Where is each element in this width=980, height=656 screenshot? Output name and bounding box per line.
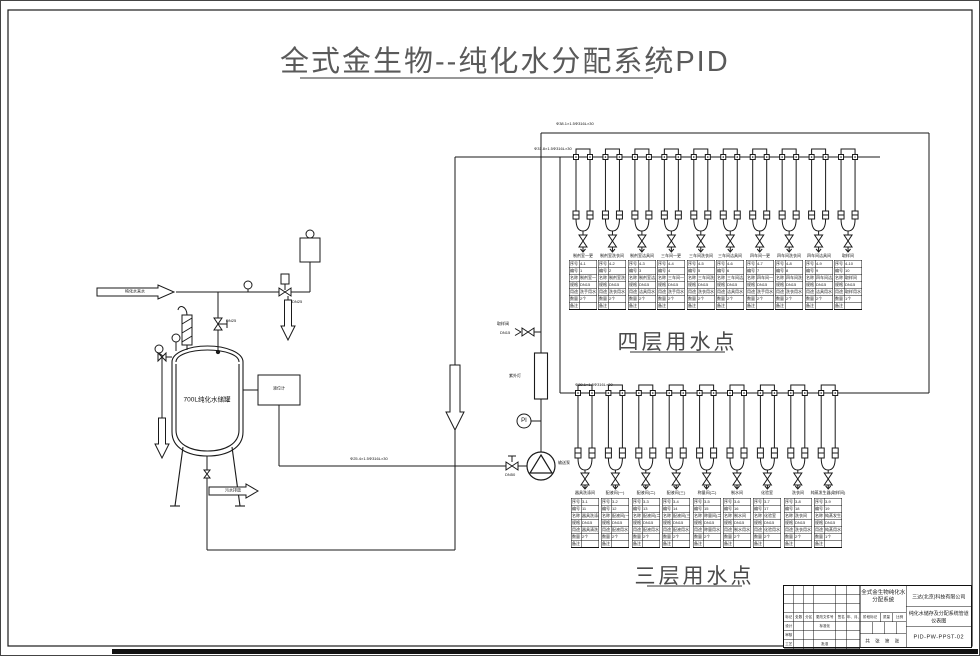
table-field-value: 配液间(一): [612, 513, 629, 520]
titleblock-grid: 标记处数分区更改文件号签名年、月、日设计标准化审核工艺批准: [784, 586, 860, 649]
table-field-value: 称量间(二): [703, 513, 720, 520]
table-field-label: 序号: [572, 499, 582, 506]
table-field-label: 编号: [746, 268, 756, 275]
table-field-label: 序号: [663, 499, 673, 506]
use-point-spec-table: 序号4-6编号6名称三车间洁具间规格DN15用途洁具用水数量2个备注: [716, 260, 744, 310]
table-field-label: 编号: [599, 268, 609, 275]
table-field-value: DN15: [815, 282, 832, 289]
table-field-label: 规格: [784, 520, 794, 527]
titleblock-cell: [836, 595, 847, 604]
table-field-label: 编号: [717, 268, 727, 275]
table-field-value: 4-9: [815, 261, 832, 268]
table-field-label: 用途: [754, 527, 764, 534]
table-field-label: 名称: [658, 275, 668, 282]
stage-label: 阶段标记: [861, 613, 881, 622]
table-field-label: 数量: [776, 296, 786, 303]
table-field-value: DN15: [582, 520, 599, 527]
table-field-value: 3: [638, 268, 655, 275]
table-field-value: 3-6: [734, 499, 751, 506]
table-field-value: 4-2: [609, 261, 626, 268]
table-field-value: 制剂室洁具间: [638, 275, 655, 282]
table-field-value: 10: [845, 268, 862, 275]
use-point-spec-table: 序号4-10编号10名称取样间规格DN15用途取样用水数量1个备注: [834, 260, 862, 310]
table-field-label: 规格: [805, 282, 815, 289]
table-field-label: 序号: [835, 261, 845, 268]
table-field-value: 2个: [612, 534, 629, 541]
table-field-label: 名称: [815, 513, 825, 520]
sample-valve-size-label: DN15: [500, 331, 510, 335]
titleblock-cell: [804, 622, 814, 631]
table-field-value: [673, 541, 690, 548]
table-field-value: 取样间: [845, 275, 862, 282]
stage-boxes: [861, 622, 907, 634]
table-field-value: 2个: [609, 296, 626, 303]
table-field-value: 配液用水: [612, 527, 629, 534]
table-field-label: 用途: [835, 289, 845, 296]
table-field-label: 名称: [602, 513, 612, 520]
table-field-label: 规格: [815, 520, 825, 527]
table-field-label: 规格: [658, 282, 668, 289]
table-field-label: 编号: [805, 268, 815, 275]
table-field-label: 数量: [754, 534, 764, 541]
titleblock-cell: [794, 622, 804, 631]
table-field-label: 序号: [599, 261, 609, 268]
use-point-spec-table: 序号4-3编号3名称制剂室洁具间规格DN15用途洁具用水数量2个备注: [628, 260, 656, 310]
supply-header-spec-label: Φ38.1×1.5Φ316L×30: [556, 122, 594, 126]
sheet-count: 共 张 第 张: [861, 634, 907, 649]
table-field-label: 规格: [746, 282, 756, 289]
table-field-value: 3-7: [764, 499, 781, 506]
table-field-value: [845, 303, 862, 310]
pump-label: 输送泵: [558, 461, 570, 465]
table-field-value: 4: [668, 268, 685, 275]
table-field-value: 配液间(三): [673, 513, 690, 520]
table-field-label: 编号: [784, 506, 794, 513]
tank-label: 700L纯化水储罐: [177, 394, 237, 404]
inlet-arrow-label: 纯化水来水: [105, 289, 165, 294]
titleblock-cell: [847, 586, 860, 595]
table-field-label: 规格: [663, 520, 673, 527]
table-field-label: 名称: [724, 513, 734, 520]
table-field-label: 规格: [570, 282, 580, 289]
table-field-label: 规格: [572, 520, 582, 527]
table-field-label: 序号: [776, 261, 786, 268]
table-field-value: DN15: [825, 520, 842, 527]
table-field-value: DN15: [642, 520, 659, 527]
table-field-label: 序号: [815, 499, 825, 506]
table-field-value: 洗手用水: [668, 289, 685, 296]
titleblock-cell: [814, 604, 836, 613]
use-point-spec-table: 序号3-8编号18名称洗衣间规格DN15用途洗衣用水数量2个备注: [784, 498, 812, 548]
table-field-label: 用途: [776, 289, 786, 296]
table-field-label: 数量: [632, 534, 642, 541]
table-field-value: [580, 303, 597, 310]
table-field-value: 16: [734, 506, 751, 513]
titleblock-cell: 审核: [784, 631, 794, 640]
titleblock-cell: [804, 595, 814, 604]
table-field-value: 11: [582, 506, 599, 513]
table-field-value: 制水间: [734, 513, 751, 520]
table-field-label: 用途: [658, 289, 668, 296]
third-floor-section-title: 三层用水点: [617, 560, 772, 590]
table-field-label: 备注: [599, 303, 609, 310]
table-field-label: 备注: [663, 541, 673, 548]
use-point-spec-table: 序号3-5编号15名称称量间(二)规格DN15用途称量用水数量2个备注: [693, 498, 721, 548]
titleblock-cell: [814, 631, 836, 640]
table-field-value: 3-5: [703, 499, 720, 506]
titleblock-cell: 工艺: [784, 640, 794, 649]
suction-spec-label: Φ25.4×1.5Φ316L×30: [350, 457, 388, 461]
table-field-label: 序号: [693, 499, 703, 506]
table-field-label: 编号: [628, 268, 638, 275]
titleblock-cell: [794, 604, 804, 613]
table-field-label: 名称: [805, 275, 815, 282]
titleblock-cell: [836, 604, 847, 613]
table-field-label: 序号: [632, 499, 642, 506]
titleblock-cell: [836, 622, 847, 631]
table-field-label: 规格: [602, 520, 612, 527]
third-header-spec-label: Φ38.1×1.5Φ316L×30: [575, 383, 613, 387]
table-field-label: 规格: [835, 282, 845, 289]
titleblock-cell: 年、月、日: [847, 613, 860, 622]
table-field-label: 序号: [724, 499, 734, 506]
table-field-label: 用途: [693, 527, 703, 534]
use-point-label: 取样间: [818, 253, 878, 259]
table-field-label: 名称: [628, 275, 638, 282]
table-field-value: [703, 541, 720, 548]
table-field-label: 用途: [632, 527, 642, 534]
table-field-label: 编号: [754, 506, 764, 513]
table-field-value: [612, 541, 629, 548]
table-field-label: 用途: [628, 289, 638, 296]
table-field-value: 4-3: [638, 261, 655, 268]
table-field-label: 序号: [687, 261, 697, 268]
pi-gauge-label: PI: [514, 418, 534, 424]
table-field-value: [697, 303, 714, 310]
table-field-value: DN15: [727, 282, 744, 289]
table-field-label: 备注: [776, 303, 786, 310]
table-field-value: 2个: [794, 534, 811, 541]
table-field-value: DN15: [703, 520, 720, 527]
table-field-label: 备注: [632, 541, 642, 548]
table-field-value: DN15: [612, 520, 629, 527]
table-field-value: 1个: [825, 534, 842, 541]
titleblock-cell: [804, 631, 814, 640]
drawing-title: 全式金生物--纯化水分配系统PID: [280, 38, 680, 80]
regulator-size-label: DN25: [292, 300, 302, 304]
table-field-value: 9: [815, 268, 832, 275]
table-field-value: 三车间洁具间: [727, 275, 744, 282]
table-field-value: 4-5: [697, 261, 714, 268]
table-field-label: 编号: [570, 268, 580, 275]
table-field-value: 3-9: [825, 499, 842, 506]
table-field-value: 配液用水: [673, 527, 690, 534]
table-field-value: DN15: [580, 282, 597, 289]
stage-label-row: 阶段标记 质量 比例: [861, 613, 907, 622]
table-field-value: 2个: [673, 534, 690, 541]
table-field-value: [786, 303, 803, 310]
titleblock-cell: [836, 586, 847, 595]
table-field-value: DN15: [756, 282, 773, 289]
uv-lamp-label: 紫外灯: [509, 374, 521, 378]
table-field-value: 三车间洗衣间: [697, 275, 714, 282]
table-field-value: 2个: [815, 296, 832, 303]
use-point-spec-table: 序号3-3编号13名称配液间(二)规格DN15用途配液用水数量2个备注: [632, 498, 660, 548]
table-field-value: 13: [642, 506, 659, 513]
titleblock-cell: [784, 604, 794, 613]
table-field-value: 四车间洗衣间: [786, 275, 803, 282]
table-field-label: 用途: [805, 289, 815, 296]
table-field-label: 数量: [784, 534, 794, 541]
table-field-value: DN15: [638, 282, 655, 289]
sample-valve-label: 取样阀: [497, 322, 509, 326]
table-field-label: 数量: [724, 534, 734, 541]
titleblock-cell: [847, 595, 860, 604]
table-field-value: 2个: [668, 296, 685, 303]
table-field-value: 配液用水: [642, 527, 659, 534]
table-field-label: 规格: [687, 282, 697, 289]
table-field-label: 名称: [599, 275, 609, 282]
table-field-label: 备注: [570, 303, 580, 310]
table-field-label: 数量: [835, 296, 845, 303]
table-field-label: 名称: [835, 275, 845, 282]
table-field-value: 17: [764, 506, 781, 513]
table-field-label: 用途: [815, 527, 825, 534]
table-field-value: 18: [794, 506, 811, 513]
table-field-label: 用途: [572, 527, 582, 534]
table-field-value: 取样用水: [845, 289, 862, 296]
table-field-label: 名称: [687, 275, 697, 282]
table-field-label: 备注: [724, 541, 734, 548]
inlet-valve-size-label: DN25: [226, 319, 236, 323]
table-field-label: 序号: [570, 261, 580, 268]
table-field-value: 19: [825, 506, 842, 513]
table-field-value: 7: [756, 268, 773, 275]
table-field-label: 名称: [784, 513, 794, 520]
table-field-value: 化验室: [764, 513, 781, 520]
table-field-label: 规格: [599, 282, 609, 289]
titleblock-cell: [847, 631, 860, 640]
titleblock-cell: [847, 640, 860, 649]
table-field-label: 名称: [746, 275, 756, 282]
drain-arrow-label: 污水排放: [203, 488, 263, 493]
table-field-label: 序号: [658, 261, 668, 268]
titleblock-cell: [784, 595, 794, 604]
use-point-spec-table: 序号4-2编号2名称制剂室洗衣间规格DN15用途洗衣用水数量2个备注: [598, 260, 626, 310]
table-field-label: 序号: [628, 261, 638, 268]
table-field-value: [609, 303, 626, 310]
table-field-label: 序号: [784, 499, 794, 506]
table-field-label: 数量: [602, 534, 612, 541]
table-field-value: 4-1: [580, 261, 597, 268]
table-field-label: 备注: [835, 303, 845, 310]
table-field-label: 用途: [602, 527, 612, 534]
table-field-value: [727, 303, 744, 310]
table-field-label: 规格: [632, 520, 642, 527]
table-field-label: 编号: [776, 268, 786, 275]
drawing-number: PID-PW-PPST-02: [907, 627, 972, 647]
table-field-value: 3-4: [673, 499, 690, 506]
table-field-label: 编号: [815, 506, 825, 513]
titleblock-cell: [814, 586, 836, 595]
titleblock-cell: 设计: [784, 622, 794, 631]
table-field-label: 数量: [572, 534, 582, 541]
table-field-value: 制水用水: [734, 527, 751, 534]
table-field-value: [815, 303, 832, 310]
use-point-spec-table: 序号4-1编号1名称制剂室一更规格DN15用途洗手用水数量2个备注: [569, 260, 597, 310]
use-point-label: 纯蒸发生器(取样间): [798, 490, 858, 496]
table-field-label: 备注: [572, 541, 582, 548]
use-point-spec-table: 序号4-7编号7名称四车间一更规格DN15用途洗手用水数量2个备注: [746, 260, 774, 310]
table-field-label: 名称: [570, 275, 580, 282]
pid-drawing-page: 全式金生物--纯化水分配系统PID 四层用水点 三层用水点 纯化水来水 污水排放…: [0, 0, 980, 656]
titleblock-middle: 全式金生物纯化水分配系统 阶段标记 质量 比例 共 张 第 张: [860, 586, 906, 647]
table-field-label: 序号: [602, 499, 612, 506]
table-field-value: 1: [580, 268, 597, 275]
table-field-value: 2个: [734, 534, 751, 541]
use-point-spec-table: 序号3-4编号14名称配液间(三)规格DN15用途配液用水数量2个备注: [662, 498, 690, 548]
table-field-value: 洗衣用水: [697, 289, 714, 296]
table-field-value: DN15: [794, 520, 811, 527]
table-field-label: 规格: [754, 520, 764, 527]
table-field-value: 2个: [727, 296, 744, 303]
table-field-label: 序号: [746, 261, 756, 268]
table-field-value: 洗衣用水: [609, 289, 626, 296]
titleblock-cell: [804, 604, 814, 613]
table-field-label: 规格: [693, 520, 703, 527]
table-field-label: 名称: [632, 513, 642, 520]
table-field-label: 用途: [570, 289, 580, 296]
use-point-spec-table: 序号4-4编号4名称三车间一更规格DN15用途洗手用水数量2个备注: [657, 260, 685, 310]
table-field-value: 称量用水: [703, 527, 720, 534]
table-field-value: DN15: [668, 282, 685, 289]
table-field-value: [794, 541, 811, 548]
table-field-value: 配液间(二): [642, 513, 659, 520]
table-field-value: 3-3: [642, 499, 659, 506]
table-field-label: 用途: [599, 289, 609, 296]
table-field-value: 1个: [845, 296, 862, 303]
titleblock-revision-area: 标记处数分区更改文件号签名年、月、日设计标准化审核工艺批准: [784, 586, 860, 647]
table-field-label: 编号: [602, 506, 612, 513]
stage-label: 比例: [893, 613, 906, 622]
titleblock-cell: [804, 640, 814, 649]
table-field-label: 编号: [724, 506, 734, 513]
table-field-label: 编号: [693, 506, 703, 513]
table-field-label: 数量: [570, 296, 580, 303]
table-field-label: 备注: [815, 541, 825, 548]
table-field-label: 数量: [746, 296, 756, 303]
table-field-value: 2个: [580, 296, 597, 303]
table-field-label: 用途: [746, 289, 756, 296]
titleblock-cell: 签名: [836, 613, 847, 622]
table-field-value: 洗衣间: [794, 513, 811, 520]
table-field-value: 6: [727, 268, 744, 275]
table-field-value: DN15: [764, 520, 781, 527]
table-field-value: 纯蒸用水: [825, 527, 842, 534]
table-field-label: 名称: [663, 513, 673, 520]
table-field-label: 编号: [663, 506, 673, 513]
table-field-label: 名称: [717, 275, 727, 282]
table-field-value: 2个: [642, 534, 659, 541]
table-field-label: 用途: [663, 527, 673, 534]
use-point-spec-table: 序号3-1编号11名称器具洗涤间规格DN15用途器具清洗数量2个备注: [571, 498, 599, 548]
table-field-label: 用途: [687, 289, 697, 296]
table-field-value: 纯蒸发生器: [825, 513, 842, 520]
table-field-value: 4-6: [727, 261, 744, 268]
table-field-label: 序号: [754, 499, 764, 506]
titleblock-cell: [794, 595, 804, 604]
table-field-label: 序号: [717, 261, 727, 268]
table-field-value: 洗手用水: [580, 289, 597, 296]
table-field-value: 5: [697, 268, 714, 275]
table-field-value: 3-8: [794, 499, 811, 506]
table-field-value: DN15: [845, 282, 862, 289]
level-box-label: 液位计: [249, 386, 309, 391]
use-point-spec-table: 序号3-9编号19名称纯蒸发生器规格DN15用途纯蒸用水数量1个备注: [814, 498, 842, 548]
table-field-label: 数量: [815, 534, 825, 541]
table-field-value: 三车间一更: [668, 275, 685, 282]
table-field-label: 数量: [599, 296, 609, 303]
label-overlay: 全式金生物--纯化水分配系统PID 四层用水点 三层用水点 纯化水来水 污水排放…: [0, 0, 980, 656]
table-field-label: 备注: [687, 303, 697, 310]
titleblock-cell: [836, 631, 847, 640]
use-point-spec-table: 序号3-6编号16名称制水间规格DN15用途制水用水数量2个备注: [723, 498, 751, 548]
use-point-spec-table: 序号3-7编号17名称化验室规格DN15用途化验用水数量2个备注: [753, 498, 781, 548]
table-field-value: 2个: [697, 296, 714, 303]
table-field-label: 编号: [572, 506, 582, 513]
table-field-value: 四车间一更: [756, 275, 773, 282]
table-field-value: 8: [786, 268, 803, 275]
table-field-label: 备注: [658, 303, 668, 310]
table-field-value: 12: [612, 506, 629, 513]
table-field-label: 名称: [572, 513, 582, 520]
table-field-value: [668, 303, 685, 310]
titleblock-right: 三达(北京)科技有限公司 纯化水储存及分配系统管道仪表图 PID-PW-PPST…: [906, 586, 971, 647]
table-field-value: DN15: [609, 282, 626, 289]
suction-valve-size-label: DN50: [505, 473, 515, 477]
table-field-label: 用途: [784, 527, 794, 534]
table-field-value: 2个: [582, 534, 599, 541]
table-field-value: 制剂室洗衣间: [609, 275, 626, 282]
table-field-label: 用途: [717, 289, 727, 296]
table-field-value: [582, 541, 599, 548]
titleblock-cell: [847, 622, 860, 631]
table-field-value: DN15: [673, 520, 690, 527]
table-field-value: [638, 303, 655, 310]
table-field-value: 器具清洗: [582, 527, 599, 534]
table-field-value: 洁具用水: [638, 289, 655, 296]
table-field-label: 规格: [724, 520, 734, 527]
return-header-spec-label: Φ31.8×1.5Φ316L×30: [534, 147, 572, 151]
table-field-label: 规格: [776, 282, 786, 289]
table-field-label: 数量: [663, 534, 673, 541]
titleblock-cell: 标准化: [814, 622, 836, 631]
table-field-label: 数量: [658, 296, 668, 303]
table-field-value: 洗衣用水: [794, 527, 811, 534]
titleblock-cell: [794, 586, 804, 595]
table-field-value: 4-7: [756, 261, 773, 268]
table-field-value: 15: [703, 506, 720, 513]
table-field-value: 2个: [756, 296, 773, 303]
table-field-label: 数量: [805, 296, 815, 303]
table-field-value: 4-4: [668, 261, 685, 268]
table-field-label: 数量: [628, 296, 638, 303]
table-field-value: 4-8: [786, 261, 803, 268]
titleblock-cell: 标记: [784, 613, 794, 622]
titleblock-cell: [836, 640, 847, 649]
titleblock-cell: 批准: [814, 640, 836, 649]
titleblock-cell: [814, 595, 836, 604]
